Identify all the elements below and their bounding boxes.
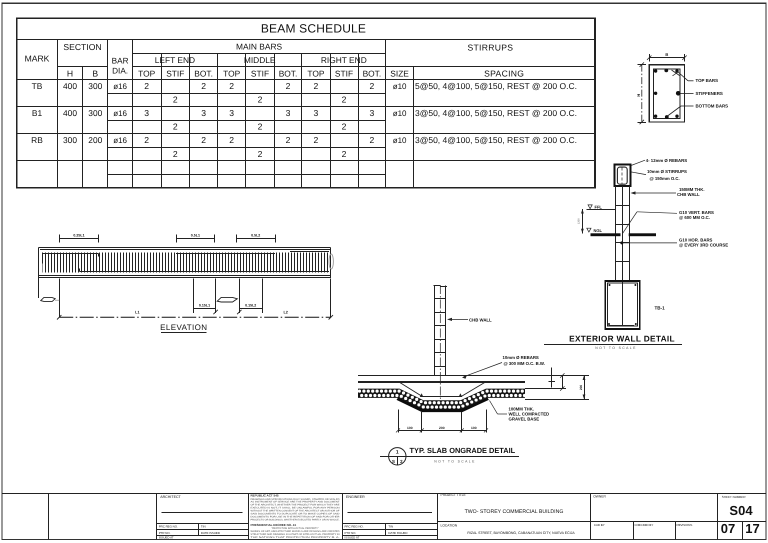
svg-text:2: 2 [370,81,375,91]
svg-text:TIN: TIN [201,525,206,529]
svg-text:ø10: ø10 [393,136,407,145]
svg-text:2: 2 [229,81,234,91]
svg-text:2: 2 [144,81,149,91]
svg-text:WORKS OF ART, ARCHITECTURE MOD: WORKS OF ART, ARCHITECTURE MODELS ARE DE… [251,530,340,533]
svg-text:10mm Ø STIRRUPS: 10mm Ø STIRRUPS [647,169,687,174]
svg-text:2: 2 [173,149,178,159]
svg-text:3: 3 [370,108,375,118]
svg-text:PRC REG NO.: PRC REG NO. [345,525,364,529]
svg-text:ISSUED AT: ISSUED AT [159,536,174,540]
svg-text:2: 2 [173,122,178,132]
svg-text:SPACING: SPACING [484,68,524,78]
svg-text:DRAWINGS AND SPECIFICATIONS DU: DRAWINGS AND SPECIFICATIONS DULY SIGNED,… [251,498,340,501]
svg-text:200: 200 [88,135,102,145]
svg-text:TB-1: TB-1 [655,306,666,311]
svg-text:PTR NO.: PTR NO. [159,531,171,535]
svg-text:2: 2 [370,135,375,145]
svg-text:2: 2 [342,149,347,159]
svg-text:"PROTECTION INTELLECTUAL PROPE: "PROTECTION INTELLECTUAL PROPERTY" [271,527,319,530]
svg-text:STIF: STIF [251,68,269,78]
svg-text:3: 3 [201,108,206,118]
svg-text:L2: L2 [283,311,287,315]
svg-text:DOCUMENTS FOR USE IN THE REPET: DOCUMENTS FOR USE IN THE REPETITION OF A… [251,516,340,519]
svg-text:B: B [92,68,98,78]
svg-text:300: 300 [63,135,77,145]
svg-text:3: 3 [286,108,291,118]
svg-text:EXTERIOR WALL DETAIL: EXTERIOR WALL DETAIL [569,334,675,344]
svg-text:TOP BARS: TOP BARS [696,78,719,83]
svg-text:REPUBLIC ACT 545: REPUBLIC ACT 545 [251,493,279,497]
svg-text:L1: L1 [135,311,139,315]
svg-text:RIZAL STREET, BAYOMBONG, CABAN: RIZAL STREET, BAYOMBONG, CABANATUAN CITY… [467,531,575,535]
svg-text:TOP: TOP [138,68,155,78]
svg-text:H: H [636,94,641,97]
svg-text:ISSUED AT: ISSUED AT [345,536,360,540]
svg-text:OWNER: OWNER [593,494,606,498]
svg-text:2: 2 [144,135,149,145]
svg-text:1: 1 [396,450,399,456]
svg-text:MAIN BARS: MAIN BARS [236,42,282,52]
svg-text:GRAVEL BASE: GRAVEL BASE [509,417,540,422]
svg-text:200: 200 [439,426,445,430]
svg-text:EXECUTED IS NOT, IT SHALL BE U: EXECUTED IS NOT, IT SHALL BE UNLAWFUL FO… [251,507,340,510]
svg-text:3: 3 [144,108,149,118]
svg-text:400: 400 [63,108,77,118]
svg-text:@ EVERY 3RD COURSE: @ EVERY 3RD COURSE [679,242,728,247]
svg-text:2: 2 [258,149,263,159]
svg-text:200: 200 [579,385,583,391]
svg-text:2: 2 [286,81,291,91]
svg-text:DATE ISSUED: DATE ISSUED [201,531,220,535]
svg-text:2: 2 [286,135,291,145]
svg-text:TYP. SLAB ONGRADE DETAIL: TYP. SLAB ONGRADE DETAIL [410,446,516,455]
svg-text:TIN: TIN [388,525,393,529]
svg-text:2: 2 [201,81,206,91]
svg-text:0.25L1: 0.25L1 [73,234,84,238]
svg-text:B: B [665,52,668,57]
svg-text:BOT.: BOT. [194,68,213,78]
svg-text:DATE ISSUED: DATE ISSUED [388,531,407,535]
svg-text:LEFT END: LEFT END [155,55,195,65]
svg-text:400: 400 [63,81,77,91]
svg-text:BOT.: BOT. [363,68,382,78]
svg-text:2: 2 [314,81,319,91]
svg-text:TWO- STOREY COMMERCIAL BUILDIN: TWO- STOREY COMMERCIAL BUILDING [465,509,564,515]
svg-text:ø16: ø16 [113,136,127,145]
svg-text:5@50, 4@100, 5@150, REST @ 200: 5@50, 4@100, 5@150, REST @ 200 O.C. [415,81,577,91]
svg-text:BOTTOM BARS: BOTTOM BARS [696,104,729,109]
svg-text:BAR: BAR [112,57,129,66]
svg-text:CAD BY: CAD BY [594,523,605,527]
svg-text:2: 2 [201,135,206,145]
svg-text:SAID DOCUMENTS TO DUPLICATE OR: SAID DOCUMENTS TO DUPLICATE OR TO MAKE C… [251,513,340,516]
svg-text:CHECKED BY: CHECKED BY [635,523,654,527]
svg-text:BOT.: BOT. [279,68,298,78]
svg-text:RB: RB [31,135,43,145]
svg-text:PRESIDENTIAL DECREE NO. 41: PRESIDENTIAL DECREE NO. 41 [251,523,297,527]
svg-text:300: 300 [88,108,102,118]
svg-text:DIA.: DIA. [112,66,128,75]
svg-text:NOT TO SCALE: NOT TO SCALE [595,346,636,350]
svg-text:TOP: TOP [223,68,240,78]
svg-text:STIRRUPS: STIRRUPS [467,43,513,53]
svg-text:ø10: ø10 [393,109,407,118]
svg-text:3@50, 4@100, 5@150, REST @ 200: 3@50, 4@100, 5@150, REST @ 200 O.C. [415,108,577,118]
svg-text:STIFFENERS: STIFFENERS [696,91,723,96]
svg-text:SHEET NUMBER: SHEET NUMBER [722,495,747,499]
svg-text:100: 100 [407,426,413,430]
svg-text:SECTION: SECTION [63,42,101,52]
svg-text:17: 17 [745,521,759,536]
svg-text:2: 2 [229,135,234,145]
svg-text:CHB WALL: CHB WALL [469,317,492,322]
svg-text:SIZE: SIZE [390,68,409,78]
svg-text:PRC REG NO.: PRC REG NO. [159,525,178,529]
svg-text:ø16: ø16 [113,109,127,118]
svg-text:2: 2 [342,122,347,132]
svg-text:PROJECTS OR BUILDINGS, WHETHER: PROJECTS OR BUILDINGS, WHETHER EXECUTED … [251,519,340,522]
svg-text:STRUCTURE AND DRAWING IN A PAR: STRUCTURE AND DRAWING IN A PART OF INTEL… [251,533,340,536]
svg-text:NOT TO SCALE: NOT TO SCALE [434,459,475,463]
svg-text:AS INSTRUMENT OF SERVICE ARE T: AS INSTRUMENT OF SERVICE ARE THE PROPERT… [251,501,341,504]
svg-text:@ 150mm O.C.: @ 150mm O.C. [650,176,680,181]
svg-text:2: 2 [314,135,319,145]
svg-text:2: 2 [173,95,178,105]
svg-text:NGL: NGL [594,228,603,233]
svg-text:CHB WALL: CHB WALL [677,192,700,197]
svg-text:0.15L2: 0.15L2 [245,303,256,307]
svg-text:1200: 1200 [577,218,580,224]
svg-text:10mm Ø REBARS: 10mm Ø REBARS [503,355,539,360]
svg-text:MIDDLE: MIDDLE [244,55,276,65]
svg-text:RIGHT END: RIGHT END [321,55,367,65]
svg-text:ENGINEER: ENGINEER [346,495,365,499]
svg-text:100: 100 [471,426,477,430]
svg-text:300: 300 [88,81,102,91]
svg-text:S04: S04 [729,503,753,518]
svg-text:ELEVATION: ELEVATION [160,323,207,332]
svg-text:FFL: FFL [595,204,603,209]
svg-text:TB: TB [32,81,43,91]
svg-text:ø10: ø10 [393,82,407,91]
svg-text:THE NATIONS THAT PROTECTION PR: THE NATIONS THAT PROTECTION PROPERTY R. … [251,536,341,539]
svg-text:ARCHITECT: ARCHITECT [160,495,181,499]
svg-text:STIF: STIF [335,68,353,78]
svg-text:0.5L2: 0.5L2 [251,234,260,238]
svg-text:07: 07 [721,521,735,536]
svg-text:OF THE ARCHITECT, WHETHER THE: OF THE ARCHITECT, WHETHER THE PROJECT FO… [251,504,341,507]
svg-text:S: S [392,459,395,464]
svg-text:2: 2 [258,95,263,105]
svg-text:REVISIONS: REVISIONS [677,523,693,527]
svg-text:B1: B1 [32,108,43,118]
svg-text:3@50, 4@100, 5@150, REST @ 200: 3@50, 4@100, 5@150, REST @ 200 O.C. [415,135,577,145]
svg-text:LOCATION: LOCATION [441,523,458,527]
svg-text:WITHOUT THE WRITTEN CONSENT OF: WITHOUT THE WRITTEN CONSENT OF THE ARCHI… [251,510,341,513]
svg-text:2: 2 [342,95,347,105]
svg-text:H: H [67,68,73,78]
svg-text:@ 600 MM O.C.: @ 600 MM O.C. [679,215,710,220]
svg-text:TOP: TOP [307,68,324,78]
svg-text:4- 12mm Ø REBARS: 4- 12mm Ø REBARS [646,158,687,163]
svg-text:0.5L1: 0.5L1 [191,234,200,238]
svg-text:ø16: ø16 [113,82,127,91]
svg-text:BEAM SCHEDULE: BEAM SCHEDULE [261,22,366,36]
svg-text:3: 3 [229,108,234,118]
svg-text:STIF: STIF [166,68,184,78]
svg-text:0.15L1: 0.15L1 [199,303,210,307]
svg-text:MARK: MARK [25,54,50,64]
svg-text:@ 300 MM O.C. B.W.: @ 300 MM O.C. B.W. [504,361,545,366]
svg-text:2: 2 [258,122,263,132]
svg-text:PROJECT TITLE: PROJECT TITLE [441,493,467,497]
svg-text:PTR NO.: PTR NO. [345,531,357,535]
svg-text:3: 3 [314,108,319,118]
